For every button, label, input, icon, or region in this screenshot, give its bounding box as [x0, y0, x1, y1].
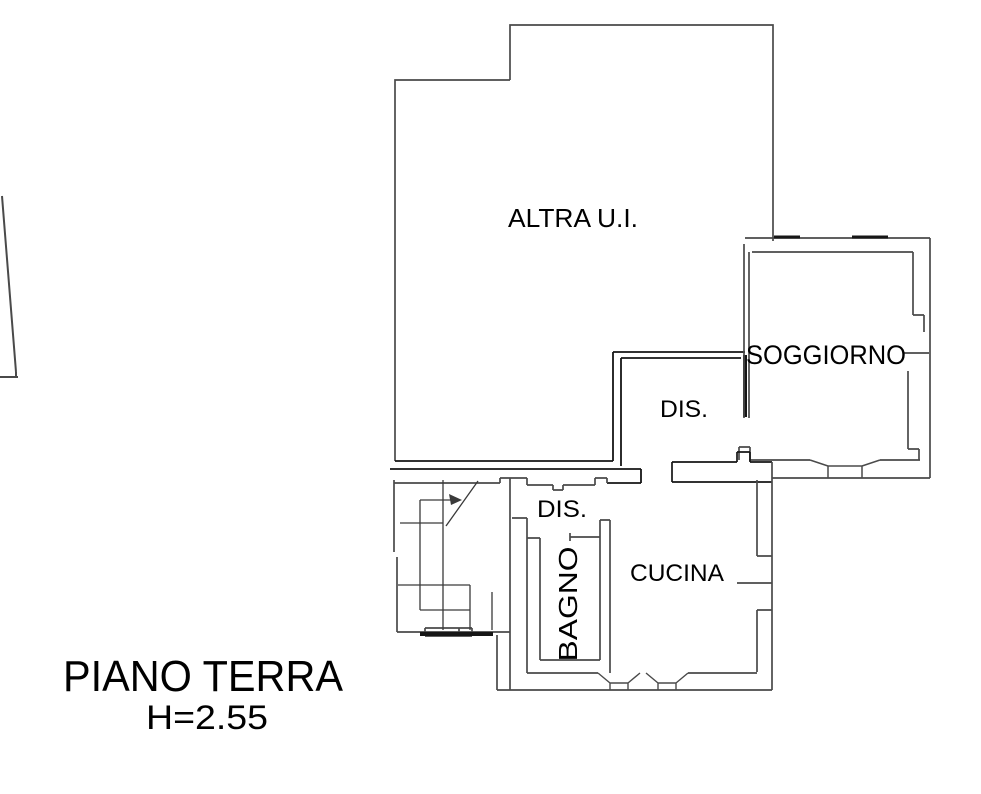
cucina-east-wall — [737, 462, 772, 690]
left-edge-wall-fragment — [0, 196, 18, 377]
room-label-dis-upper: DIS. — [660, 396, 708, 423]
stair-arrow-head — [449, 494, 462, 505]
cucina-north-wall — [672, 452, 772, 482]
window-symbols — [598, 673, 688, 690]
altra-ui-walls — [395, 25, 773, 461]
floor-plan-drawing: ALTRA U.I. SOGGIORNO DIS. DIS. CUCINA BA… — [0, 0, 981, 794]
floorplan-page: ALTRA U.I. SOGGIORNO DIS. DIS. CUCINA BA… — [0, 0, 981, 794]
floor-title: PIANO TERRA — [63, 652, 344, 701]
room-label-soggiorno: SOGGIORNO — [746, 340, 906, 370]
floor-height: H=2.55 — [146, 699, 268, 737]
room-label-bagno: BAGNO — [553, 547, 583, 662]
room-label-dis-lower: DIS. — [537, 496, 587, 523]
soggiorno-door-symbol — [810, 460, 880, 478]
room-label-altra-ui: ALTRA U.I. — [508, 203, 638, 233]
room-label-cucina: CUCINA — [630, 560, 724, 587]
stairs — [398, 480, 492, 630]
